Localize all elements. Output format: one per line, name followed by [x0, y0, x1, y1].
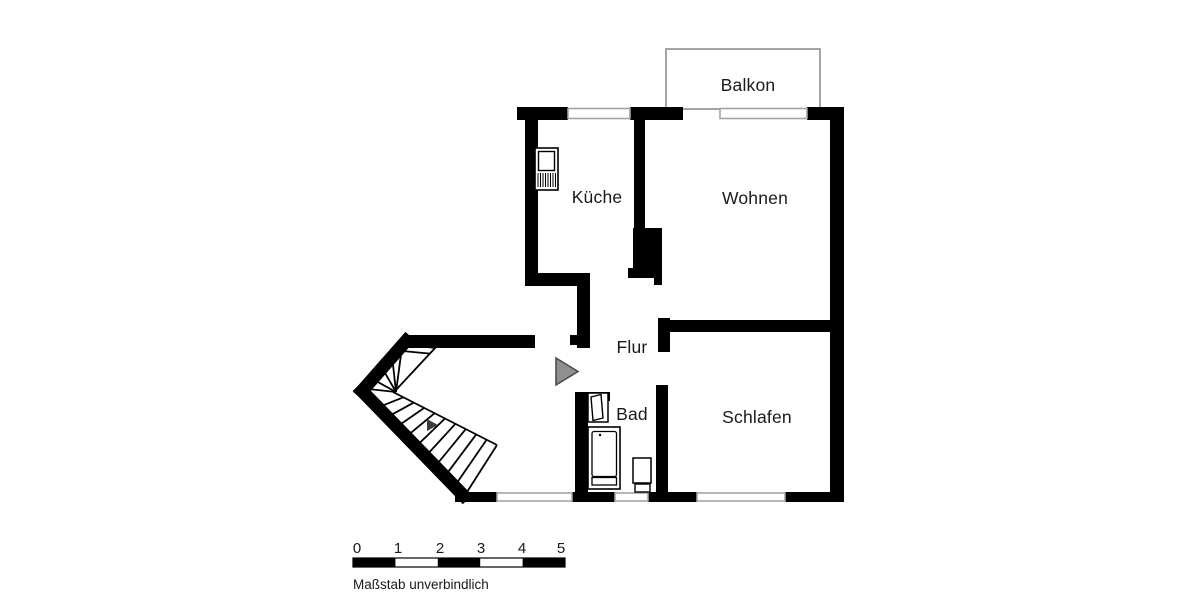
wall-kitchen-stub-foot [570, 335, 577, 345]
stairs-direction-arrow-icon [427, 419, 438, 431]
window-hall [497, 493, 572, 501]
wall-living-bedroom [658, 320, 830, 332]
kitchen-appliance-icon [535, 148, 558, 190]
wall-right [830, 107, 844, 502]
window-balcony [720, 109, 807, 119]
scale-bar-segment [353, 558, 395, 567]
chimney-block [633, 228, 662, 278]
room-label-wohnen: Wohnen [722, 188, 788, 208]
room-label-bad: Bad [616, 404, 648, 424]
scale-tick-2: 2 [436, 540, 444, 557]
room-label-kueche: Küche [572, 187, 623, 207]
room-label-flur: Flur [617, 337, 648, 357]
scale-caption: Maßstab unverbindlich [353, 577, 489, 592]
wall-kitchen-stub [577, 273, 590, 348]
wall-bath-left [575, 392, 588, 492]
wall-kitchen-left [525, 107, 538, 286]
room-label-balkon: Balkon [721, 75, 776, 95]
wall-diagonal-lower [362, 391, 463, 495]
wall-bottom-d [785, 492, 844, 502]
floor-plan-page: Balkon Küche Wohnen Flur Bad Schlafen 0 … [0, 0, 1200, 600]
chimney-foot [628, 268, 633, 278]
scale-bar-segment [438, 558, 480, 567]
wall-bath-right [656, 385, 668, 492]
chimney-tab [654, 278, 662, 285]
wall-top-a [517, 107, 568, 120]
window-bedroom [697, 493, 785, 501]
scale-bar-segment [523, 558, 565, 567]
toilet-icon [633, 458, 651, 492]
scale-bar: 0 1 2 3 4 5 Maßstab unverbindlich [353, 540, 565, 592]
floor-plan-canvas: Balkon Küche Wohnen Flur Bad Schlafen 0 … [0, 0, 1200, 600]
wall-living-bedroom-stub [658, 318, 670, 352]
window-kitchen [568, 109, 630, 119]
entrance-arrow-icon [556, 358, 578, 385]
scale-tick-5: 5 [557, 540, 565, 557]
window-bath [615, 493, 648, 501]
room-label-schlafen: Schlafen [722, 407, 792, 427]
scale-tick-0: 0 [353, 540, 361, 557]
scale-tick-3: 3 [477, 540, 485, 557]
wall-bottom-b [572, 492, 615, 502]
wall-kitchen-living [634, 118, 645, 228]
wall-bottom-c [648, 492, 697, 502]
bath-door-icon [588, 393, 608, 422]
scale-tick-4: 4 [518, 540, 526, 557]
bathtub-icon [588, 427, 620, 489]
scale-tick-1: 1 [394, 540, 402, 557]
